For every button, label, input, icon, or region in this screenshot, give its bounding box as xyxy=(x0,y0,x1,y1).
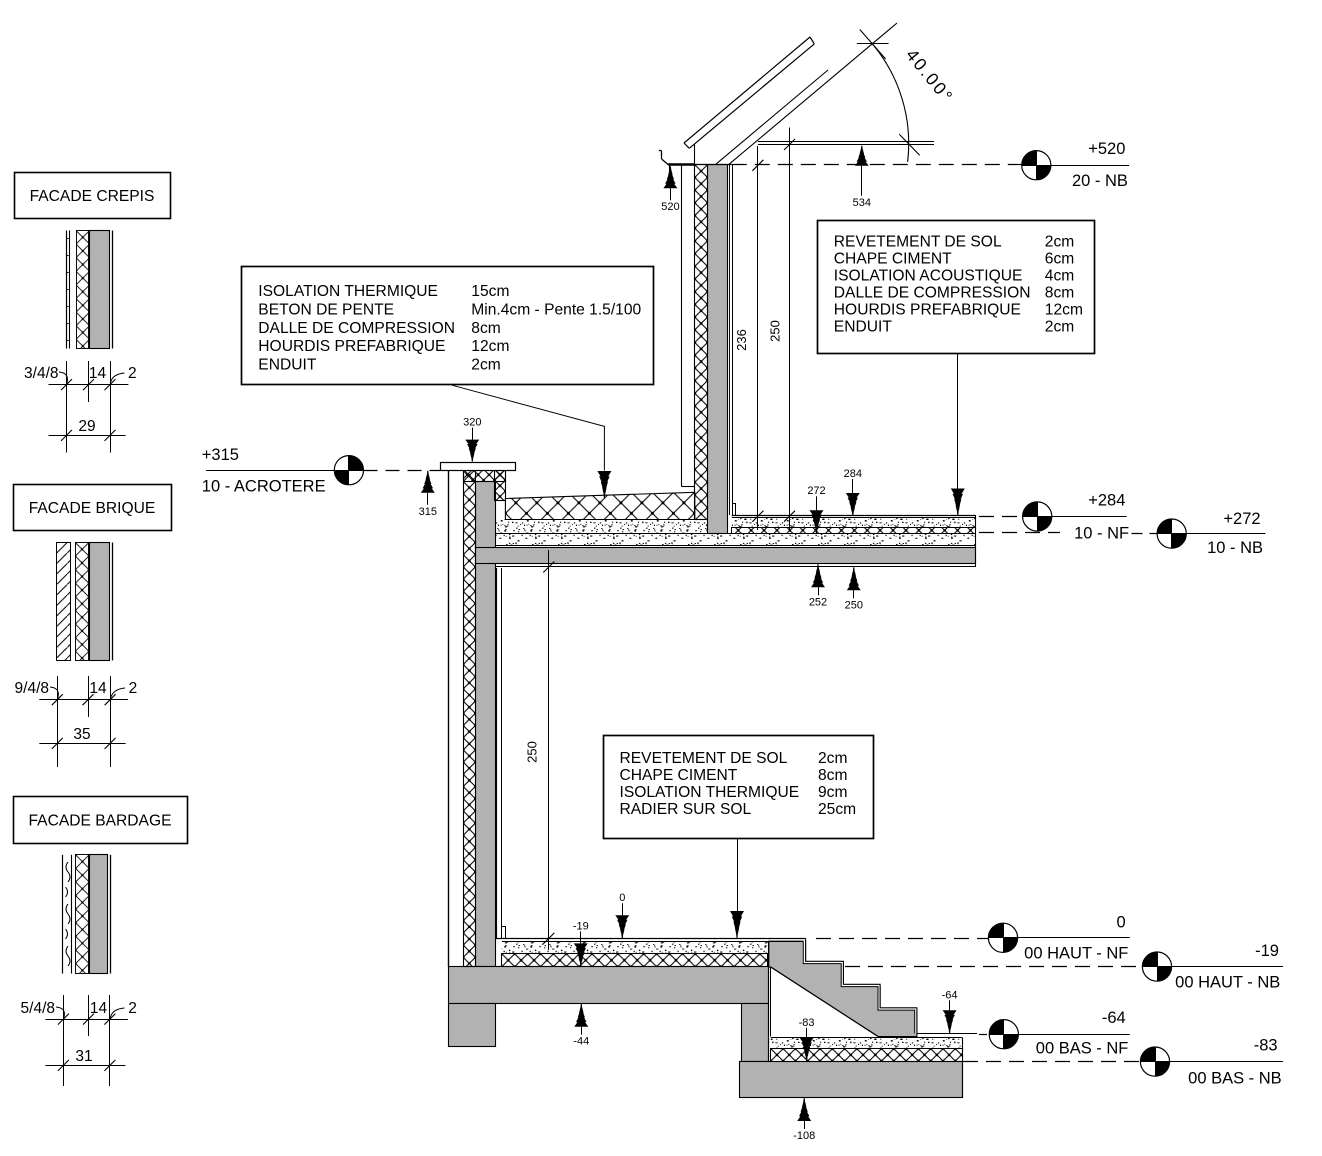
svg-text:250: 250 xyxy=(525,741,540,763)
svg-text:3/4/8: 3/4/8 xyxy=(24,365,58,382)
svg-text:520: 520 xyxy=(661,201,679,213)
svg-text:+284: +284 xyxy=(1088,492,1125,510)
svg-text:DALLE DE COMPRESSION: DALLE DE COMPRESSION xyxy=(834,285,1031,302)
svg-text:9cm: 9cm xyxy=(818,784,847,801)
svg-text:0: 0 xyxy=(1117,913,1126,931)
svg-text:8cm: 8cm xyxy=(1045,285,1074,302)
svg-text:00 HAUT - NF: 00 HAUT - NF xyxy=(1024,945,1128,963)
svg-text:14: 14 xyxy=(89,365,107,382)
svg-text:Min.4cm - Pente 1.5/100: Min.4cm - Pente 1.5/100 xyxy=(471,302,641,319)
svg-text:-64: -64 xyxy=(1102,1009,1126,1027)
svg-text:315: 315 xyxy=(419,506,437,518)
svg-text:-83: -83 xyxy=(1254,1037,1278,1055)
svg-text:ISOLATION THERMIQUE: ISOLATION THERMIQUE xyxy=(258,283,438,300)
svg-text:ENDUIT: ENDUIT xyxy=(258,356,317,373)
svg-text:CHAPE CIMENT: CHAPE CIMENT xyxy=(834,251,952,268)
svg-text:REVETEMENT DE SOL: REVETEMENT DE SOL xyxy=(620,750,788,767)
svg-text:534: 534 xyxy=(853,197,871,209)
svg-text:ISOLATION ACOUSTIQUE: ISOLATION ACOUSTIQUE xyxy=(834,268,1023,285)
svg-text:35: 35 xyxy=(73,726,90,743)
svg-text:6cm: 6cm xyxy=(1045,251,1074,268)
svg-text:8cm: 8cm xyxy=(818,767,847,784)
svg-text:29: 29 xyxy=(78,418,95,435)
svg-text:2: 2 xyxy=(129,680,138,697)
svg-text:10 - NB: 10 - NB xyxy=(1207,539,1263,557)
svg-text:RADIER SUR SOL: RADIER SUR SOL xyxy=(620,801,752,818)
svg-text:-83: -83 xyxy=(799,1017,815,1029)
svg-text:250: 250 xyxy=(768,320,783,342)
svg-text:-44: -44 xyxy=(573,1036,589,1048)
svg-text:8cm: 8cm xyxy=(471,320,500,337)
svg-text:2cm: 2cm xyxy=(471,356,500,373)
svg-text:9/4/8: 9/4/8 xyxy=(15,680,49,697)
svg-text:FACADE CREPIS: FACADE CREPIS xyxy=(30,188,155,205)
svg-text:20 - NB: 20 - NB xyxy=(1072,172,1128,190)
svg-text:14: 14 xyxy=(89,680,107,697)
svg-text:+272: +272 xyxy=(1223,510,1260,528)
svg-text:-108: -108 xyxy=(793,1130,815,1142)
svg-text:10 - NF: 10 - NF xyxy=(1074,525,1129,543)
svg-text:ENDUIT: ENDUIT xyxy=(834,319,893,336)
svg-text:+520: +520 xyxy=(1088,140,1125,158)
svg-text:12cm: 12cm xyxy=(1045,302,1083,319)
svg-text:BETON DE PENTE: BETON DE PENTE xyxy=(258,302,394,319)
svg-text:2cm: 2cm xyxy=(1045,319,1074,336)
svg-text:-19: -19 xyxy=(573,920,589,932)
svg-text:FACADE BARDAGE: FACADE BARDAGE xyxy=(29,812,172,829)
svg-text:12cm: 12cm xyxy=(471,338,509,355)
svg-text:-64: -64 xyxy=(942,989,958,1001)
svg-text:2: 2 xyxy=(128,365,137,382)
svg-text:HOURDIS PREFABRIQUE: HOURDIS PREFABRIQUE xyxy=(834,302,1021,319)
svg-text:2cm: 2cm xyxy=(818,750,847,767)
svg-text:HOURDIS PREFABRIQUE: HOURDIS PREFABRIQUE xyxy=(258,338,445,355)
svg-text:272: 272 xyxy=(807,485,825,497)
svg-text:2cm: 2cm xyxy=(1045,234,1074,251)
svg-text:10 - ACROTERE: 10 - ACROTERE xyxy=(202,477,326,495)
svg-text:-19: -19 xyxy=(1255,942,1279,960)
svg-text:2: 2 xyxy=(128,1000,137,1017)
svg-text:15cm: 15cm xyxy=(471,283,509,300)
svg-text:284: 284 xyxy=(844,468,862,480)
svg-text:320: 320 xyxy=(463,417,481,429)
svg-text:4cm: 4cm xyxy=(1045,268,1074,285)
svg-text:+315: +315 xyxy=(202,446,239,464)
svg-text:00 HAUT - NB: 00 HAUT - NB xyxy=(1175,974,1280,992)
svg-text:FACADE BRIQUE: FACADE BRIQUE xyxy=(29,500,156,517)
svg-text:DALLE DE COMPRESSION: DALLE DE COMPRESSION xyxy=(258,320,455,337)
svg-text:00 BAS - NB: 00 BAS - NB xyxy=(1188,1069,1282,1087)
svg-text:00 BAS - NF: 00 BAS - NF xyxy=(1036,1039,1129,1057)
svg-text:31: 31 xyxy=(75,1048,92,1065)
svg-text:14: 14 xyxy=(90,1000,108,1017)
svg-text:250: 250 xyxy=(845,599,863,611)
svg-text:CHAPE CIMENT: CHAPE CIMENT xyxy=(620,767,738,784)
svg-text:REVETEMENT DE SOL: REVETEMENT DE SOL xyxy=(834,234,1002,251)
svg-text:ISOLATION THERMIQUE: ISOLATION THERMIQUE xyxy=(620,784,800,801)
svg-text:236: 236 xyxy=(734,329,749,351)
svg-text:252: 252 xyxy=(809,596,827,608)
svg-text:25cm: 25cm xyxy=(818,801,856,818)
svg-text:5/4/8: 5/4/8 xyxy=(21,1000,55,1017)
svg-text:0: 0 xyxy=(619,892,625,904)
